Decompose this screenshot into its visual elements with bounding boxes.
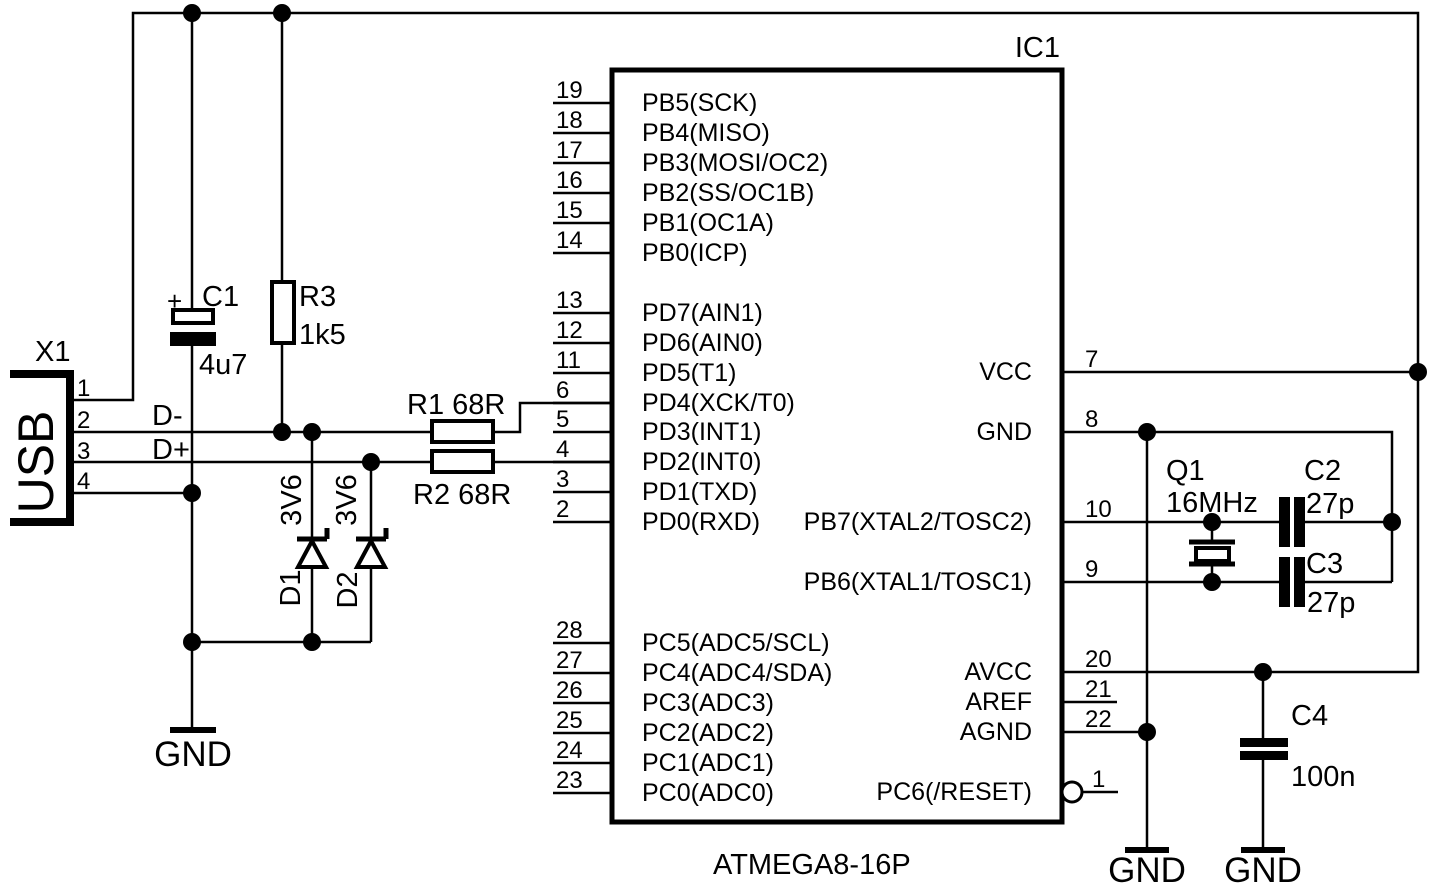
usb-pin-number-3: 3 (77, 440, 90, 464)
resistor-r1-symbol (432, 421, 493, 442)
usb-designator: X1 (35, 337, 70, 367)
d1-value: 3V6 (277, 460, 307, 540)
d2-value: 3V6 (332, 460, 362, 540)
pin-num-7: 7 (1085, 348, 1098, 372)
signal-d-plus: D+ (152, 435, 190, 465)
pin-name-pb3: PB3(MOSI/OC2) (642, 150, 828, 176)
pin-num-13: 13 (556, 289, 583, 313)
pin-num-23: 23 (556, 769, 583, 793)
ic-part-number: ATMEGA8-16P (713, 850, 911, 880)
ic-designator: IC1 (1005, 33, 1060, 63)
usb-label: USB (6, 402, 66, 522)
pin-num-1: 1 (1092, 768, 1105, 792)
capacitor-c3-symbol (1279, 557, 1305, 607)
pin-num-20: 20 (1085, 648, 1112, 672)
pin-name-pb2: PB2(SS/OC1B) (642, 180, 814, 206)
d1-ref: D1 (276, 548, 306, 628)
pin-num-3: 3 (556, 468, 569, 492)
pin-num-19: 19 (556, 79, 583, 103)
c2-ref: C2 (1304, 456, 1341, 486)
pin-num-9: 9 (1085, 558, 1098, 582)
pin-num-8: 8 (1085, 408, 1098, 432)
net-d-minus (74, 343, 432, 537)
pin-name-avcc: AVCC (632, 659, 1032, 685)
c1-ref: C1 (202, 282, 239, 312)
pin-num-27: 27 (556, 649, 583, 673)
pin-name-pb0: PB0(ICP) (642, 240, 748, 266)
pin-name-pb4: PB4(MISO) (642, 120, 770, 146)
pin-name-pd1: PD1(TXD) (642, 479, 757, 505)
pin-name-pc5: PC5(ADC5/SCL) (642, 630, 830, 656)
d2-ref: D2 (333, 550, 363, 630)
q1-ref: Q1 (1166, 456, 1205, 486)
pin-num-12: 12 (556, 319, 583, 343)
pin-name-pd6: PD6(AIN0) (642, 330, 763, 356)
r2-label: R2 68R (413, 480, 511, 510)
pin-num-10: 10 (1085, 498, 1112, 522)
schematic-canvas: IC1 ATMEGA8-16P X1 USB 1 2 3 4 D- D+ + C… (0, 0, 1435, 892)
pin-name-agnd: AGND (632, 719, 1032, 745)
pin-num-28: 28 (556, 619, 583, 643)
pin-num-4: 4 (556, 438, 569, 462)
net-d-plus (74, 462, 432, 537)
usb-pin-number-1: 1 (77, 377, 90, 401)
pin-num-24: 24 (556, 739, 583, 763)
pin-num-16: 16 (556, 169, 583, 193)
c2-value: 27p (1306, 489, 1354, 519)
gnd-label-left: GND (143, 737, 243, 773)
pin-name-pd4: PD4(XCK/T0) (642, 390, 795, 416)
pin-num-17: 17 (556, 139, 583, 163)
pin-num-25: 25 (556, 709, 583, 733)
net-pd4 (493, 403, 614, 432)
gnd-label-right: GND (1213, 853, 1313, 889)
pin-num-18: 18 (556, 109, 583, 133)
crystal-q1-symbol (1189, 542, 1235, 564)
c3-ref: C3 (1306, 549, 1343, 579)
pin-name-pb5: PB5(SCK) (642, 90, 757, 116)
usb-pin-number-2: 2 (77, 409, 90, 433)
pin-name-pc6-reset: PC6(/RESET) (632, 779, 1032, 805)
pin-name-pb1: PB1(OC1A) (642, 210, 774, 236)
r1-label: R1 68R (407, 390, 505, 420)
gnd-label-middle: GND (1097, 853, 1197, 889)
pin-name-pb6: PB6(XTAL1/TOSC1) (632, 569, 1032, 595)
c4-value: 100n (1291, 762, 1356, 792)
resistor-r3-symbol (272, 282, 294, 343)
pin-num-15: 15 (556, 199, 583, 223)
pin-name-pd7: PD7(AIN1) (642, 300, 763, 326)
pin-name-pd2: PD2(INT0) (642, 449, 761, 475)
capacitor-c2-symbol (1279, 497, 1305, 547)
capacitor-c4-symbol (1240, 738, 1288, 760)
usb-pin-number-4: 4 (77, 470, 90, 494)
c4-ref: C4 (1291, 701, 1328, 731)
pin-num-22: 22 (1085, 708, 1112, 732)
pin-name-aref: AREF (632, 689, 1032, 715)
pin-name-pb7: PB7(XTAL2/TOSC2) (632, 509, 1032, 535)
pin-num-26: 26 (556, 679, 583, 703)
pin-num-14: 14 (556, 229, 583, 253)
pin-name-gnd: GND (632, 419, 1032, 445)
pin-name-pc1: PC1(ADC1) (642, 750, 774, 776)
signal-d-minus: D- (152, 401, 183, 431)
c3-value: 27p (1307, 588, 1355, 618)
pin-num-21: 21 (1085, 678, 1112, 702)
reset-inversion-bubble (1062, 782, 1082, 802)
r3-ref: R3 (299, 282, 336, 312)
c1-value: 4u7 (199, 350, 247, 380)
r3-value: 1k5 (299, 320, 346, 350)
pin-num-5: 5 (556, 408, 569, 432)
net-xtal2 (1060, 522, 1279, 542)
pin-num-11: 11 (556, 349, 581, 373)
pin-num-6: 6 (556, 379, 569, 403)
q1-value: 16MHz (1166, 488, 1258, 518)
pin-num-2: 2 (556, 498, 569, 522)
resistor-r2-symbol (432, 451, 493, 472)
pin-name-vcc: VCC (632, 359, 1032, 385)
c1-polarity: + (167, 288, 182, 314)
